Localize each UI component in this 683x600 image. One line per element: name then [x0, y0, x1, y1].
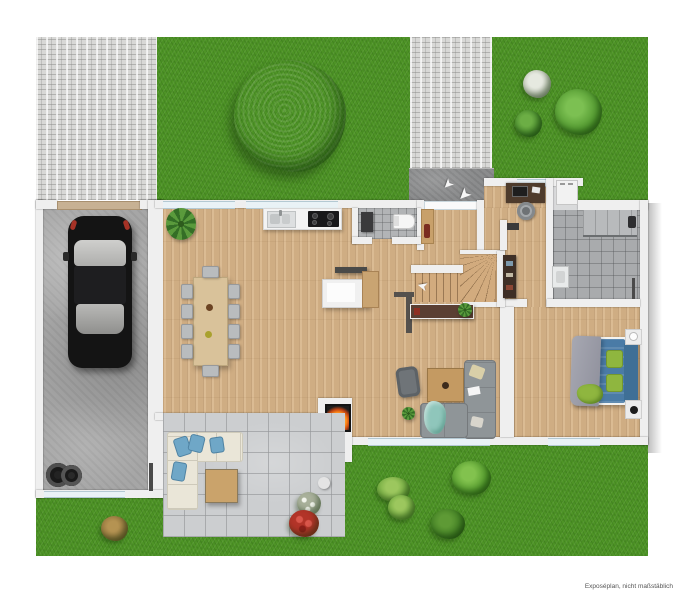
wc-wall-south-b — [392, 237, 421, 244]
faucet-icon — [279, 210, 282, 216]
disclaimer-text: Exposéplan, nicht maßstäblich — [493, 584, 673, 591]
closet-contents — [424, 224, 430, 238]
bush-small — [515, 110, 542, 137]
shower — [583, 210, 637, 237]
garage-door — [57, 201, 142, 210]
nightstand — [625, 329, 642, 345]
burner-icon — [327, 213, 334, 220]
shower-fixture-icon — [628, 216, 636, 228]
washer-handle — [560, 183, 565, 185]
flower-bush-red — [289, 510, 319, 537]
cooktop — [308, 211, 339, 227]
island-side-panel — [362, 271, 379, 308]
house-west-wall — [148, 200, 163, 498]
desk-papers — [532, 186, 541, 193]
armchair — [395, 366, 421, 399]
table-deco — [206, 304, 213, 311]
kitchen-sink — [267, 211, 296, 228]
lamp-icon — [630, 333, 637, 340]
garage-window — [44, 491, 125, 498]
burner-icon — [312, 213, 318, 219]
plant-living — [402, 407, 415, 420]
window-dining — [163, 201, 235, 209]
shelf-items — [506, 261, 513, 266]
dining-chair — [228, 284, 240, 299]
headboard — [624, 343, 638, 402]
window-bedroom-south — [548, 438, 600, 446]
wall-north-bath — [578, 200, 648, 210]
dining-chair — [202, 266, 219, 278]
garage-pillar-left — [36, 200, 57, 209]
shelf-items — [506, 285, 513, 290]
plant-lowboard — [458, 303, 472, 317]
island-top — [327, 283, 355, 302]
lamp-icon — [630, 406, 638, 414]
bathroom-door — [632, 278, 635, 299]
toilet — [393, 214, 415, 229]
bathroom-sink — [552, 266, 569, 288]
pillow — [606, 350, 623, 368]
car-roof — [74, 266, 126, 304]
hall-wall-stub — [500, 220, 507, 250]
dining-chair — [202, 365, 219, 377]
plant-dining — [166, 208, 196, 240]
toilet-tank — [394, 216, 399, 226]
dining-table — [193, 277, 228, 366]
stairs-winder — [460, 253, 497, 302]
garden-path — [410, 37, 492, 168]
office-chair — [517, 202, 535, 220]
hall-bench — [507, 223, 519, 230]
car-mirror — [63, 252, 69, 261]
shelf-items — [506, 273, 513, 277]
hall-shelf — [503, 255, 516, 298]
dining-chair — [181, 344, 193, 359]
dining-chair — [228, 324, 240, 339]
car-mirror — [131, 252, 137, 261]
tire-icon — [61, 465, 82, 486]
dining-chair — [228, 344, 240, 359]
bush-brown — [101, 516, 128, 541]
chair-seat — [522, 207, 530, 215]
burner-icon — [327, 221, 332, 226]
floor-plan: ➤ ➤ — [0, 0, 683, 600]
sofa-pillow — [470, 416, 484, 428]
coffee-table — [427, 368, 464, 402]
lowboard-deco — [414, 308, 420, 315]
spare-tires — [46, 463, 82, 489]
nightstand — [625, 400, 642, 419]
building-shadow — [648, 203, 662, 453]
stairs-railing — [411, 265, 463, 273]
car-windshield — [74, 240, 126, 266]
patio-pillow — [209, 436, 225, 454]
tree — [234, 60, 346, 172]
bush-white — [523, 70, 551, 98]
basin — [556, 271, 565, 283]
dining-chair — [228, 304, 240, 319]
washing-machine — [556, 180, 578, 205]
wc-wall-south-a — [352, 237, 372, 244]
dining-chair — [181, 284, 193, 299]
window-living-south — [368, 438, 490, 446]
table-bowl — [442, 382, 449, 389]
table-deco — [205, 331, 212, 338]
hall-closet — [421, 209, 434, 244]
burner-icon — [312, 220, 317, 225]
throw-blanket — [424, 401, 446, 434]
wc-vanity — [361, 212, 373, 232]
bush-large — [555, 89, 602, 135]
dining-chair — [181, 304, 193, 319]
garage-wall-left — [36, 200, 43, 498]
dining-chair — [181, 324, 193, 339]
entry-wall-right — [477, 200, 484, 250]
car-rear-window — [76, 304, 124, 334]
sink-basin — [282, 214, 290, 224]
garage-side-door — [149, 463, 153, 491]
washer-handle — [568, 183, 573, 185]
bush-light-green — [388, 495, 415, 520]
patio-table — [205, 469, 238, 503]
wall-living-bedroom-divider — [500, 307, 514, 437]
laptop-icon — [512, 186, 528, 197]
car — [68, 216, 132, 368]
desk — [506, 183, 545, 203]
bush-dark-green — [431, 509, 465, 539]
patio-pillar — [318, 477, 330, 489]
car-taillight — [70, 219, 78, 230]
driveway — [36, 37, 157, 200]
bush-round-green — [452, 461, 491, 495]
wall-bedroom-north — [547, 299, 640, 307]
pillow — [606, 374, 623, 392]
